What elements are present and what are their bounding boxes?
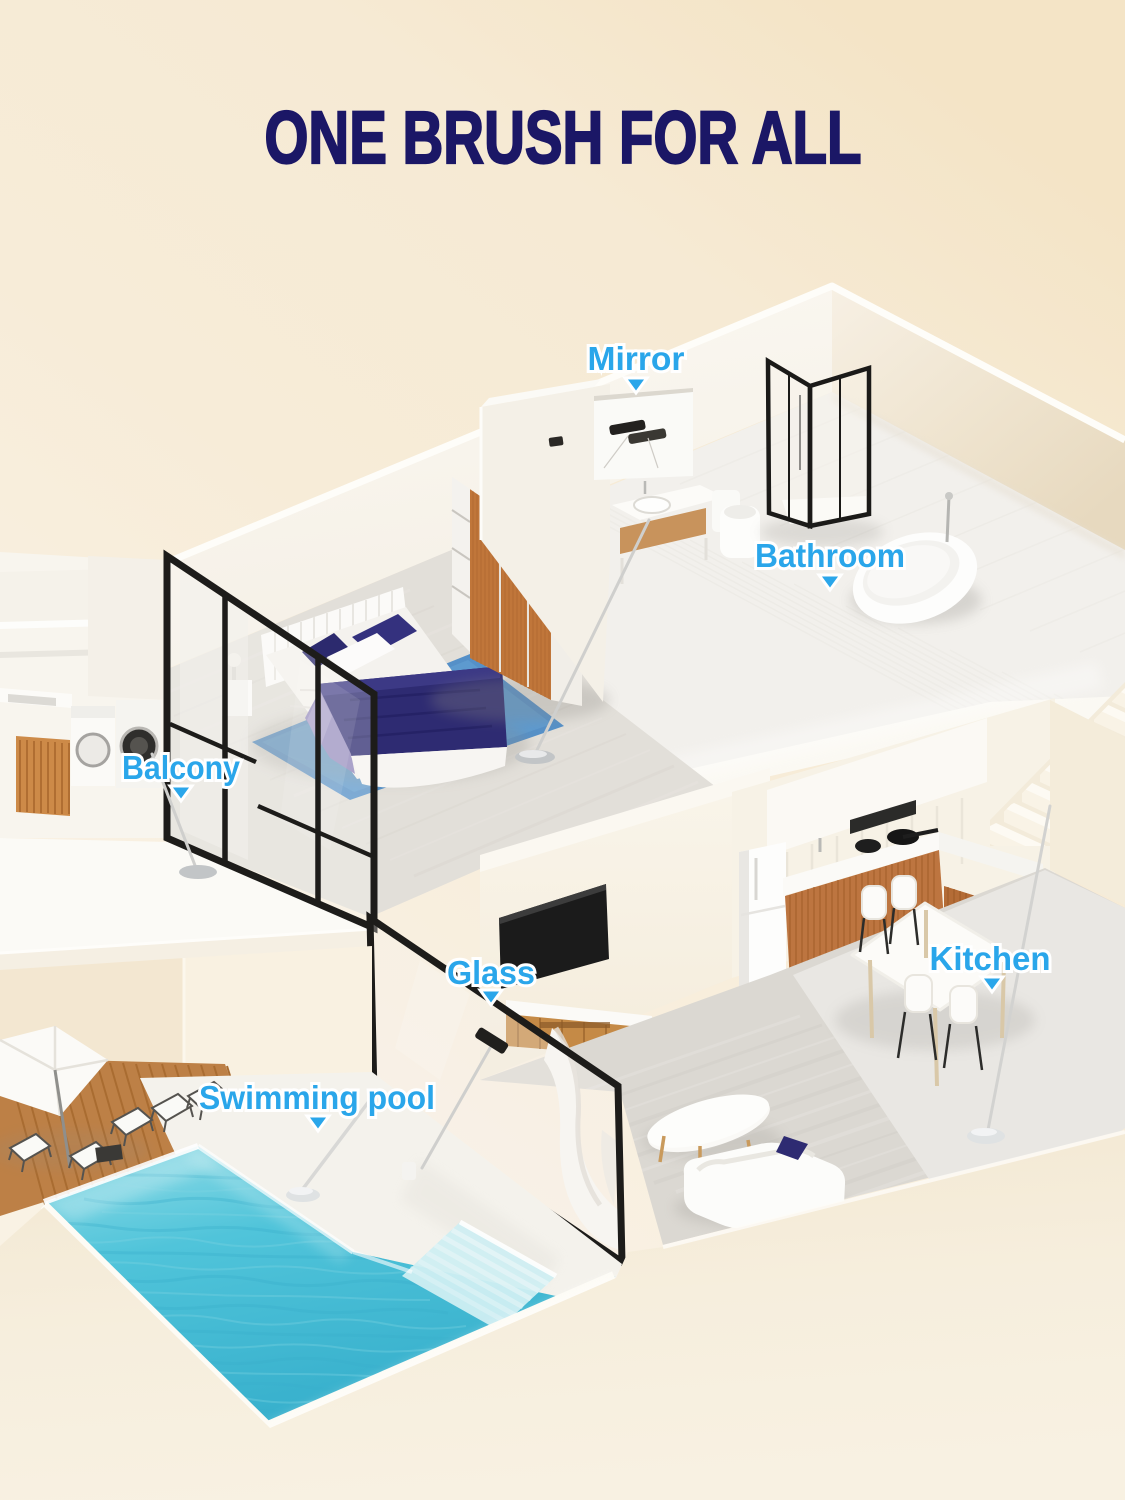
svg-text:Balcony: Balcony — [122, 749, 241, 786]
svg-text:Mirror: Mirror — [588, 340, 685, 377]
svg-text:Glass: Glass — [447, 954, 535, 991]
svg-text:Swimming pool: Swimming pool — [199, 1079, 435, 1116]
svg-text:ONE BRUSH FOR ALL: ONE BRUSH FOR ALL — [265, 96, 862, 179]
svg-text:Bathroom: Bathroom — [755, 537, 905, 574]
svg-text:Kitchen: Kitchen — [930, 940, 1051, 977]
